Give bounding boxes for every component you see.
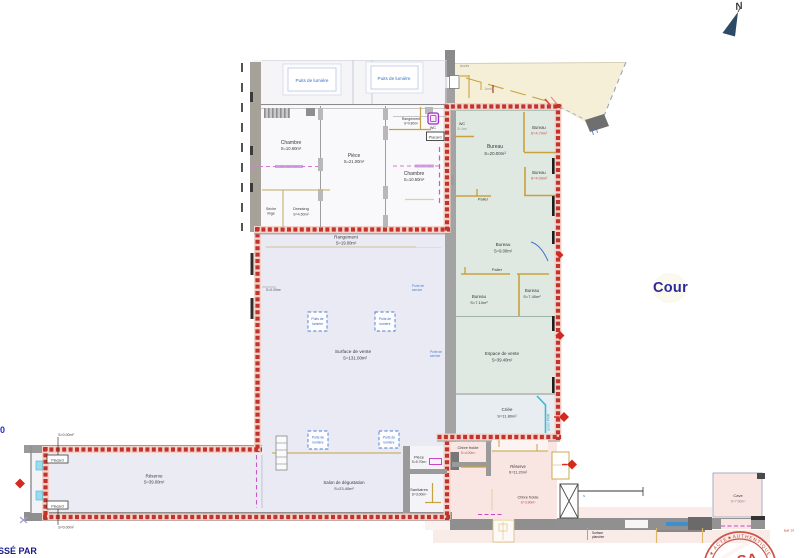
svg-text:Pièce: Pièce: [414, 455, 425, 460]
svg-text:Placard: Placard: [429, 136, 442, 140]
svg-text:Cour: Cour: [653, 280, 688, 296]
svg-text:S=0.00m²: S=0.00m²: [266, 288, 282, 292]
svg-text:S=39.00m²: S=39.00m²: [144, 480, 165, 485]
svg-text:S=131.00m²: S=131.00m²: [343, 356, 368, 361]
svg-text:WC: WC: [459, 122, 466, 126]
svg-text:plancher: plancher: [592, 535, 605, 539]
svg-text:Bureau: Bureau: [472, 294, 487, 299]
svg-text:S=21.00m²: S=21.00m²: [344, 159, 365, 164]
svg-text:Bureau: Bureau: [496, 242, 511, 247]
svg-text:S=3.00m²: S=3.00m²: [412, 493, 428, 497]
svg-text:Cave: Cave: [733, 493, 743, 498]
svg-text:Puits de: Puits de: [312, 436, 324, 440]
svg-text:WC: WC: [430, 126, 436, 130]
svg-text:Puits de lumière: Puits de lumière: [296, 78, 329, 83]
svg-text:S=4.00m²: S=4.00m²: [531, 177, 548, 181]
svg-text:S=23.40m²: S=23.40m²: [334, 486, 354, 491]
svg-text:S=4.70m²: S=4.70m²: [531, 132, 548, 136]
svg-text:N: N: [583, 494, 585, 498]
svg-text:Puits de: Puits de: [383, 436, 395, 440]
svg-text:S=0.00m²: S=0.00m²: [58, 526, 74, 530]
svg-text:accès PMR: accès PMR: [547, 413, 551, 431]
svg-text:Rangement: Rangement: [402, 117, 421, 121]
svg-text:S=10.50m²: S=10.50m²: [404, 177, 425, 182]
svg-text:S=7.10m²: S=7.10m²: [470, 300, 488, 305]
svg-text:S=10.60m²: S=10.60m²: [281, 146, 302, 151]
svg-text:Bureau: Bureau: [532, 125, 546, 130]
svg-text:Accès: Accès: [451, 175, 455, 185]
svg-text:linge: linge: [267, 212, 275, 216]
svg-text:SSÉ PAR: SSÉ PAR: [0, 546, 37, 556]
svg-text:Chbre froide: Chbre froide: [458, 446, 479, 450]
svg-text:lumière: lumière: [379, 322, 390, 326]
svg-text:lumière: lumière: [312, 322, 323, 326]
svg-text:S=9.00m²: S=9.00m²: [494, 249, 513, 254]
svg-text:lumière: lumière: [383, 441, 394, 445]
svg-text:Rangement: Rangement: [334, 235, 358, 240]
svg-text:Bureau: Bureau: [532, 170, 546, 175]
svg-text:Sèche: Sèche: [266, 207, 276, 211]
svg-text:Réserve: Réserve: [510, 464, 526, 469]
svg-text:S=11.80m²: S=11.80m²: [497, 414, 517, 419]
svg-text:Puits de: Puits de: [311, 317, 323, 321]
svg-text:Espace de vente: Espace de vente: [485, 351, 520, 356]
svg-text:Criée: Criée: [502, 407, 513, 412]
svg-text:Bureau: Bureau: [525, 288, 540, 293]
svg-text:S=4.00m²: S=4.00m²: [461, 451, 477, 455]
svg-text:service: service: [430, 354, 440, 358]
svg-text:S=11.20m²: S=11.20m²: [509, 471, 528, 475]
svg-text:S=4.50m²: S=4.50m²: [293, 213, 309, 217]
svg-text:Dressing: Dressing: [293, 206, 309, 211]
svg-text:Sanitaires: Sanitaires: [410, 487, 428, 492]
svg-text:0: 0: [0, 425, 5, 435]
svg-text:Jardin: Jardin: [484, 87, 494, 91]
svg-text:S=39.40m²: S=39.40m²: [492, 358, 513, 363]
svg-text:S=5.70m²: S=5.70m²: [412, 460, 428, 464]
svg-text:S=1m²: S=1m²: [457, 127, 466, 131]
svg-text:Bureau: Bureau: [487, 144, 503, 150]
svg-text:Puits de: Puits de: [379, 317, 391, 321]
svg-text:Puits de lumière: Puits de lumière: [378, 76, 411, 81]
svg-text:service: service: [412, 288, 422, 292]
svg-text:Réf 14: Réf 14: [784, 528, 794, 533]
svg-text:Réserve: Réserve: [145, 474, 163, 479]
svg-text:S=20.00m²: S=20.00m²: [484, 151, 506, 156]
svg-text:Salon de dégustation: Salon de dégustation: [323, 480, 365, 485]
svg-text:Accès: Accès: [460, 64, 470, 68]
svg-text:Placard: Placard: [51, 504, 64, 508]
svg-text:Surface de vente: Surface de vente: [335, 349, 372, 355]
svg-text:Chbre froide: Chbre froide: [518, 496, 539, 500]
svg-text:lumière: lumière: [312, 441, 323, 445]
svg-text:S=7.40m²: S=7.40m²: [523, 294, 541, 299]
svg-text:Palier: Palier: [478, 197, 489, 202]
svg-text:S=7.90m²: S=7.90m²: [731, 500, 747, 504]
svg-text:S=3.90m²: S=3.90m²: [521, 501, 537, 505]
svg-text:S=0.80m²: S=0.80m²: [404, 122, 418, 126]
svg-text:S=0.00m²: S=0.00m²: [58, 433, 74, 437]
svg-text:S=19.00m²: S=19.00m²: [336, 241, 357, 246]
svg-text:Palier: Palier: [492, 267, 503, 272]
svg-text:Placard: Placard: [51, 458, 64, 462]
